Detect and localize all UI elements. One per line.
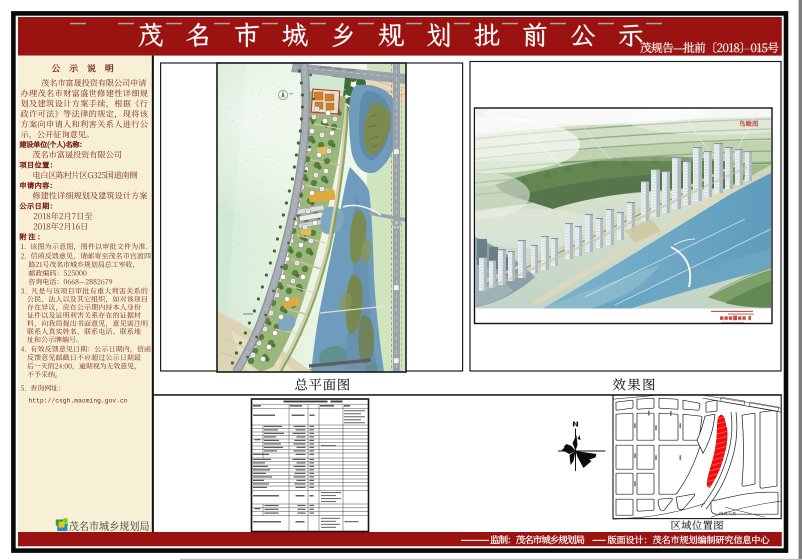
svg-text:http://csgh.maoming.gov.cn: http://csgh.maoming.gov.cn (29, 398, 128, 405)
